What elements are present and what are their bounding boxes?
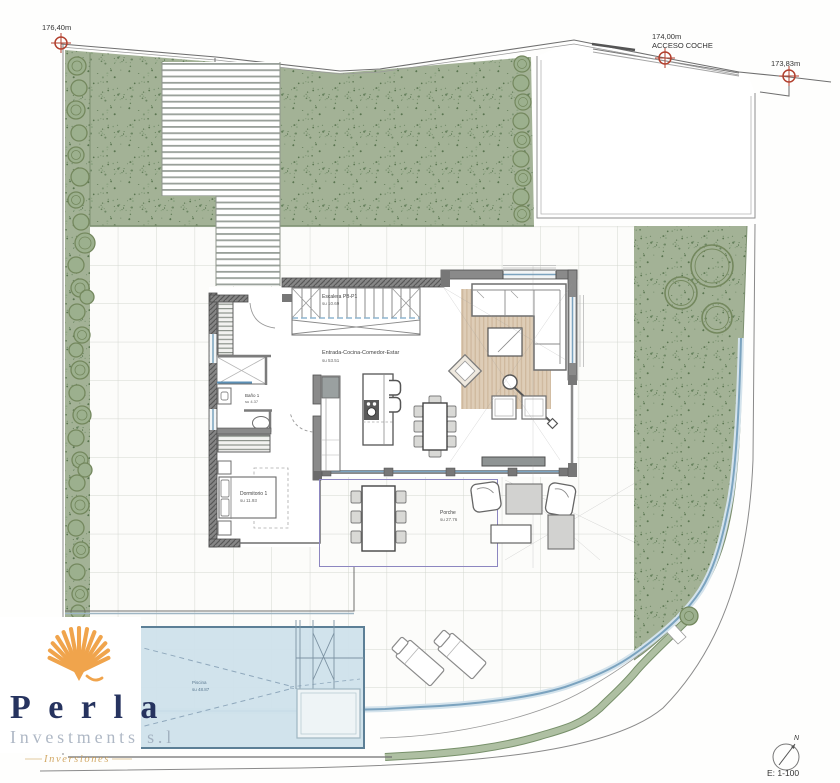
svg-text:Dormitorio 1: Dormitorio 1 (240, 491, 267, 497)
svg-text:173,83m: 173,83m (771, 59, 800, 68)
svg-text:su 11.93: su 11.93 (240, 498, 257, 503)
svg-text:176,40m: 176,40m (42, 23, 71, 32)
svg-text:su 53.51: su 53.51 (322, 358, 340, 363)
svg-text:Piscina: Piscina (192, 680, 207, 685)
svg-text:E: 1-100: E: 1-100 (767, 768, 799, 778)
svg-text:Entrada-Cocina-Comedor-Estar: Entrada-Cocina-Comedor-Estar (322, 350, 400, 356)
svg-text:Perla: Perla (10, 689, 175, 726)
svg-text:su 48.87: su 48.87 (192, 687, 210, 692)
svg-text:Baño 1: Baño 1 (245, 393, 260, 398)
svg-text:su 27.76: su 27.76 (440, 517, 458, 522)
svg-text:ACCESO COCHE: ACCESO COCHE (652, 41, 713, 50)
svg-text:Investments s.l: Investments s.l (10, 727, 175, 747)
svg-text:Inversiones: Inversiones (43, 754, 110, 765)
svg-text:su 10.69: su 10.69 (322, 301, 340, 306)
svg-text:174,00m: 174,00m (652, 32, 681, 41)
svg-text:Escalera PB-P1: Escalera PB-P1 (322, 294, 358, 300)
svg-text:Porche: Porche (440, 510, 456, 516)
svg-text:su 4.37: su 4.37 (245, 399, 259, 404)
